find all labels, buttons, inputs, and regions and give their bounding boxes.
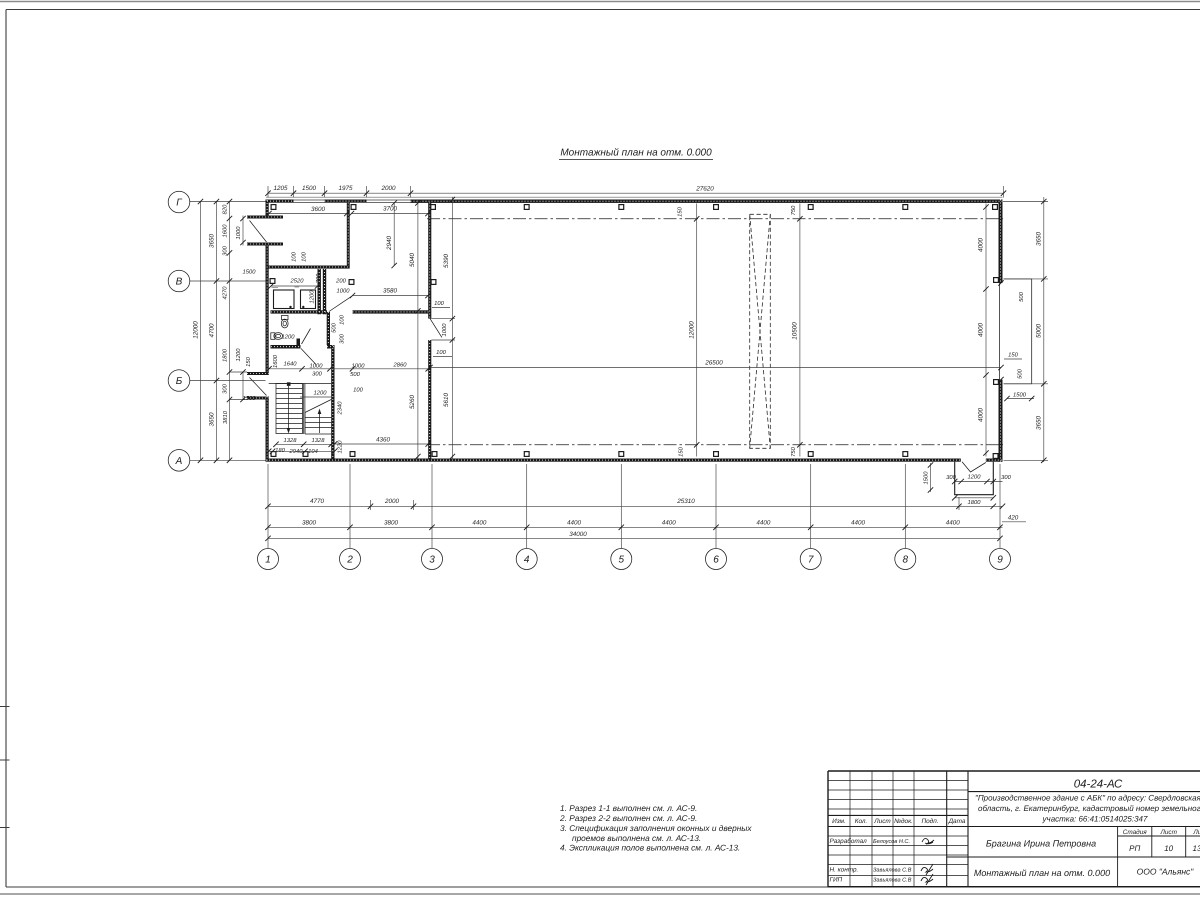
svg-text:500: 500: [331, 322, 338, 332]
svg-text:4400: 4400: [851, 519, 866, 526]
svg-text:04-24-АС: 04-24-АС: [1074, 779, 1123, 791]
svg-text:1500: 1500: [243, 269, 257, 276]
svg-text:4000: 4000: [978, 238, 985, 253]
svg-text:5390: 5390: [443, 254, 450, 269]
svg-text:"Производственное здание с АБК: "Производственное здание с АБК" по адрес…: [975, 794, 1200, 803]
svg-text:Завьялова С.В: Завьялова С.В: [873, 868, 912, 874]
svg-text:Лис: Лис: [1192, 829, 1200, 836]
svg-text:1800: 1800: [968, 499, 982, 506]
svg-text:300: 300: [1001, 474, 1011, 481]
svg-text:4400: 4400: [756, 519, 771, 526]
svg-text:1200: 1200: [314, 390, 328, 397]
svg-text:№док.: №док.: [894, 818, 913, 825]
svg-text:3700: 3700: [383, 206, 398, 213]
svg-text:ООО "Альянс": ООО "Альянс": [1137, 867, 1195, 877]
svg-text:3650: 3650: [1036, 416, 1043, 431]
svg-text:3650: 3650: [209, 412, 216, 427]
svg-text:300: 300: [222, 245, 229, 255]
svg-text:300: 300: [312, 371, 322, 378]
svg-text:8: 8: [903, 555, 909, 566]
svg-text:100: 100: [291, 251, 298, 261]
svg-text:1205: 1205: [273, 185, 288, 192]
svg-text:5260: 5260: [409, 395, 416, 410]
svg-text:1500: 1500: [923, 471, 930, 485]
svg-text:1975: 1975: [338, 185, 353, 192]
svg-text:2000: 2000: [384, 498, 400, 505]
svg-text:27620: 27620: [695, 186, 714, 193]
svg-text:100: 100: [339, 314, 346, 324]
svg-text:4400: 4400: [946, 519, 961, 526]
svg-text:3650: 3650: [1036, 232, 1043, 247]
svg-text:Лист: Лист: [873, 818, 891, 825]
svg-text:2340: 2340: [337, 401, 344, 416]
svg-text:9: 9: [997, 555, 1003, 566]
svg-text:Кол.: Кол.: [855, 818, 868, 825]
svg-text:26500: 26500: [704, 360, 723, 367]
svg-text:2000: 2000: [380, 185, 396, 192]
svg-text:750: 750: [790, 205, 797, 215]
svg-text:500: 500: [350, 371, 360, 378]
svg-text:1000: 1000: [352, 363, 366, 370]
svg-text:ГИП: ГИП: [830, 877, 843, 884]
svg-text:4770: 4770: [310, 498, 325, 505]
svg-text:1600: 1600: [222, 224, 229, 238]
svg-text:1200: 1200: [309, 290, 316, 304]
svg-text:4: 4: [524, 555, 530, 566]
svg-text:3600: 3600: [311, 206, 326, 213]
svg-text:5040: 5040: [409, 253, 416, 268]
svg-text:150: 150: [1008, 352, 1018, 359]
svg-text:100: 100: [353, 387, 363, 394]
svg-text:7: 7: [808, 555, 814, 566]
svg-text:6: 6: [713, 555, 719, 566]
svg-text:4. Экспликация полов выполн: 4. Экспликация полов выполнена см. л. АС…: [560, 843, 740, 853]
svg-text:В: В: [176, 277, 183, 288]
svg-text:2. Разрез 2-2 выполнен см.: 2. Разрез 2-2 выполнен см. л. АС-9.: [559, 813, 697, 823]
svg-text:500: 500: [1018, 291, 1025, 301]
svg-text:3580: 3580: [383, 288, 398, 295]
svg-text:1640: 1640: [284, 361, 298, 368]
svg-text:420: 420: [1008, 515, 1019, 522]
svg-text:1328: 1328: [312, 437, 326, 444]
svg-text:3650: 3650: [209, 234, 216, 249]
svg-text:Завьялова С.В: Завьялова С.В: [873, 878, 912, 884]
svg-text:3. Спецификация заполнения: 3. Спецификация заполнения оконных и две…: [560, 823, 752, 833]
svg-text:3800: 3800: [384, 519, 399, 526]
svg-text:200: 200: [335, 278, 346, 285]
svg-text:150: 150: [677, 206, 684, 216]
svg-text:700: 700: [315, 273, 322, 283]
svg-text:13: 13: [1193, 844, 1200, 853]
svg-text:1200: 1200: [968, 474, 982, 481]
svg-text:12000: 12000: [193, 321, 200, 339]
svg-text:1000: 1000: [337, 288, 351, 295]
svg-text:100: 100: [434, 300, 444, 307]
svg-text:1: 1: [265, 555, 271, 566]
svg-text:3: 3: [429, 555, 435, 566]
svg-text:4000: 4000: [978, 323, 985, 338]
svg-text:10500: 10500: [792, 322, 799, 340]
svg-text:РП: РП: [1129, 844, 1140, 853]
svg-text:1500: 1500: [243, 395, 257, 402]
svg-text:область, г. Екатеринбург, када: область, г. Екатеринбург, кадастровый но…: [978, 804, 1200, 813]
svg-text:300: 300: [222, 383, 229, 393]
svg-text:Подп.: Подп.: [921, 818, 938, 825]
svg-text:100: 100: [436, 349, 446, 356]
svg-text:1328: 1328: [284, 437, 298, 444]
svg-text:2940: 2940: [386, 236, 393, 252]
svg-text:1500: 1500: [302, 185, 317, 192]
svg-text:4000: 4000: [978, 408, 985, 423]
svg-text:300: 300: [339, 333, 346, 343]
svg-text:12000: 12000: [689, 321, 696, 339]
svg-text:1000: 1000: [310, 363, 324, 370]
svg-text:Разработал: Разработал: [830, 838, 868, 845]
svg-text:4700: 4700: [209, 323, 216, 338]
svg-text:Лист: Лист: [1159, 829, 1177, 836]
svg-text:А: А: [175, 456, 183, 467]
svg-text:1500: 1500: [1013, 392, 1027, 399]
svg-text:Б: Б: [176, 376, 183, 387]
svg-text:2: 2: [346, 555, 353, 566]
svg-text:Монтажный план на отм. 0.000: Монтажный план на отм. 0.000: [974, 868, 1110, 878]
svg-text:4270: 4270: [222, 286, 229, 300]
svg-text:500: 500: [1017, 368, 1024, 378]
svg-text:Н. контр.: Н. контр.: [830, 867, 859, 874]
svg-text:750: 750: [790, 446, 797, 456]
svg-text:300: 300: [946, 474, 956, 481]
svg-text:4400: 4400: [567, 519, 582, 526]
svg-text:1000: 1000: [441, 323, 448, 337]
svg-text:100: 100: [301, 251, 308, 261]
svg-text:2520: 2520: [290, 278, 305, 285]
svg-text:2860: 2860: [393, 362, 408, 369]
svg-text:4360: 4360: [376, 437, 391, 444]
svg-text:Брагина Ирина Петровна: Брагина Ирина Петровна: [986, 839, 1096, 849]
svg-text:3800: 3800: [302, 519, 317, 526]
svg-text:Монтажный план на отм. 0.000: Монтажный план на отм. 0.000: [560, 148, 712, 159]
svg-text:Белоусов Н.С.: Белоусов Н.С.: [873, 839, 910, 845]
svg-text:1600: 1600: [272, 354, 279, 368]
svg-text:820: 820: [222, 204, 229, 214]
svg-text:5: 5: [619, 555, 625, 566]
svg-text:3810: 3810: [222, 410, 229, 424]
svg-text:180: 180: [275, 447, 285, 454]
svg-text:1220: 1220: [337, 440, 344, 454]
svg-text:Дата: Дата: [948, 818, 966, 825]
svg-text:34000: 34000: [569, 531, 587, 538]
svg-text:150: 150: [245, 356, 252, 366]
svg-text:150: 150: [678, 446, 685, 456]
svg-text:25310: 25310: [676, 498, 695, 505]
svg-text:1200: 1200: [235, 348, 242, 362]
svg-text:1800: 1800: [222, 348, 229, 362]
svg-text:1000: 1000: [235, 226, 242, 240]
svg-text:проемов выполнена см. л. А: проемов выполнена см. л. АС-13.: [572, 833, 701, 843]
svg-text:участка: 66:41:0514025:347: участка: 66:41:0514025:347: [1042, 815, 1148, 824]
svg-text:4400: 4400: [662, 519, 677, 526]
svg-text:1. Разрез 1-1 выполнен см.: 1. Разрез 1-1 выполнен см. л. АС-9.: [560, 803, 697, 813]
svg-text:5610: 5610: [443, 393, 450, 408]
svg-text:4400: 4400: [472, 519, 487, 526]
svg-text:1200: 1200: [282, 334, 296, 341]
svg-text:5000: 5000: [1036, 324, 1043, 339]
svg-text:Стадия: Стадия: [1123, 829, 1148, 836]
svg-text:Изм.: Изм.: [832, 818, 846, 825]
svg-text:10: 10: [1164, 844, 1173, 853]
